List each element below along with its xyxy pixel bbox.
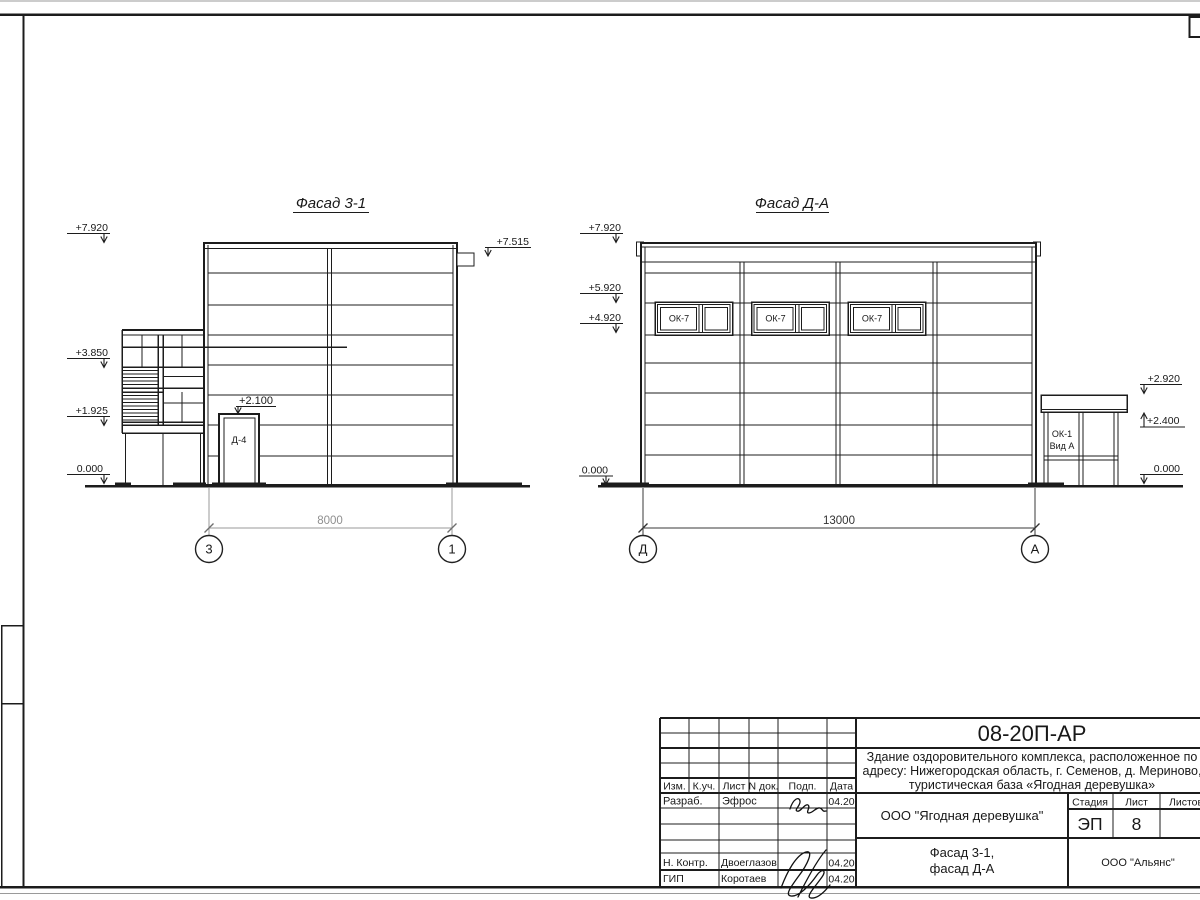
axis-label: 1 <box>448 542 455 557</box>
axis-bubble-a: А <box>1022 536 1049 563</box>
elevation-mark: +5.920 <box>589 282 622 294</box>
col-data: Дата <box>830 781 853 793</box>
elevation-mark: +2.400 <box>1147 415 1180 427</box>
drawing-sheet: Фасад 3-1 <box>0 0 1200 900</box>
roof-drain-outlet <box>457 253 474 266</box>
facade-right-dimension: 13000 Д А <box>630 488 1049 563</box>
col-podp: Подп. <box>789 781 817 793</box>
col-ndok: N док. <box>749 781 779 793</box>
project-line: адресу: Нижегородская область, г. Семено… <box>863 764 1200 778</box>
company-name: ООО "Альянс" <box>1101 857 1175 869</box>
sheet-number: 8 <box>1132 814 1142 834</box>
elevation-mark: +2.920 <box>1148 373 1181 385</box>
col-izm: Изм. <box>663 781 686 793</box>
sign-row-razrab: Разраб. Эфрос 04.20 <box>663 796 855 814</box>
door-mark-label: Д-4 <box>232 435 247 446</box>
person-name: Двоеглазов <box>721 857 777 869</box>
project-line: туристическая база «Ягодная деревушка» <box>909 778 1155 792</box>
person-name: Коротаев <box>721 873 767 885</box>
project-description: Здание оздоровительного комплекса, распо… <box>863 750 1200 792</box>
elevation-mark: +7.920 <box>76 222 109 234</box>
drawing-title-line: Фасад 3-1, <box>930 845 994 860</box>
dimension-label: 13000 <box>823 515 855 527</box>
window-mark-label: ОК-7 <box>862 314 882 324</box>
entrance-door: Д-4 <box>219 414 259 485</box>
axis-bubble-d: Д <box>630 536 657 563</box>
facade-left-dimension: 8000 3 1 <box>196 488 466 563</box>
sheets-label: Листов <box>1169 797 1200 809</box>
facade-left-title: Фасад 3-1 <box>296 195 366 212</box>
col-list: Лист <box>723 781 746 793</box>
window-ok7-3: ОК-7 <box>848 302 926 335</box>
elevation-mark: +1.925 <box>76 405 109 417</box>
date-value: 04.20 <box>828 796 854 808</box>
elevation-mark: 0.000 <box>77 463 103 475</box>
elevation-mark: 0.000 <box>1154 463 1180 475</box>
role-label: Н. Контр. <box>663 857 708 869</box>
window-ok7-2: ОК-7 <box>752 302 830 335</box>
facade-right: Фасад Д-А <box>579 195 1185 486</box>
elevation-mark: +7.515 <box>497 236 530 248</box>
axis-label: 3 <box>205 542 212 557</box>
axis-label: А <box>1031 542 1040 557</box>
axis-label: Д <box>639 542 648 557</box>
facade-right-annex: ОК-1 Вид А <box>1041 395 1127 485</box>
titleblock-header-row: Изм. К.уч. Лист N док. Подп. Дата <box>663 781 853 793</box>
elevation-mark: +4.920 <box>589 312 622 324</box>
elevation-mark: 0.000 <box>582 465 608 477</box>
annex-view-label: Вид А <box>1050 441 1075 451</box>
sheet-label: Лист <box>1125 797 1148 809</box>
elevation-mark-vent: +7.515 <box>485 236 531 256</box>
annex-window-label: ОК-1 <box>1052 429 1072 439</box>
elevation-mark: +3.850 <box>76 347 109 359</box>
door-leaf <box>224 418 255 485</box>
date-value: 04.20 <box>828 858 854 870</box>
stage-value: ЭП <box>1077 814 1102 834</box>
elevation-mark: +7.920 <box>589 222 622 234</box>
signature <box>790 799 826 813</box>
facade-left: Фасад 3-1 <box>67 195 531 486</box>
signature <box>781 850 830 898</box>
role-label: Разраб. <box>663 796 703 808</box>
facade-right-building <box>637 242 1041 485</box>
facade-right-title: Фасад Д-А <box>755 195 829 212</box>
date-value: 04.20 <box>828 874 854 886</box>
corner-stamp-box <box>1189 16 1200 38</box>
stage-label: Стадия <box>1072 797 1108 809</box>
elevation-marks-right-facade-right: +2.920 +2.400 0.000 <box>1140 373 1185 484</box>
client-name: ООО "Ягодная деревушка" <box>881 808 1044 823</box>
axis-bubble-3: 3 <box>196 536 223 563</box>
title-block: Изм. К.уч. Лист N док. Подп. Дата Разраб… <box>660 718 1200 898</box>
elevation-mark: +2.100 <box>239 395 273 407</box>
drawing-canvas: Фасад 3-1 <box>0 0 1200 900</box>
window-ok7-1: ОК-7 <box>655 302 733 335</box>
drawing-title: Фасад 3-1, фасад Д-А <box>930 845 995 876</box>
person-name: Эфрос <box>722 796 757 808</box>
window-mark-label: ОК-7 <box>669 314 689 324</box>
sign-row-nkontr: Н. Контр. Двоеглазов 04.20 <box>663 857 855 870</box>
project-line: Здание оздоровительного комплекса, распо… <box>867 750 1198 764</box>
window-mark-label: ОК-7 <box>765 314 785 324</box>
axis-bubble-1: 1 <box>439 536 466 563</box>
document-number: 08-20П-АР <box>978 721 1087 746</box>
elevation-marks-left: +7.920 +3.850 +1.925 0.000 <box>67 222 110 484</box>
role-label: ГИП <box>663 873 684 885</box>
col-kuch: К.уч. <box>693 781 716 793</box>
dimension-label: 8000 <box>317 515 343 527</box>
drawing-title-line: фасад Д-А <box>930 861 995 876</box>
elevation-marks-right-facade-left: +7.920 +5.920 +4.920 0.000 <box>579 222 623 485</box>
